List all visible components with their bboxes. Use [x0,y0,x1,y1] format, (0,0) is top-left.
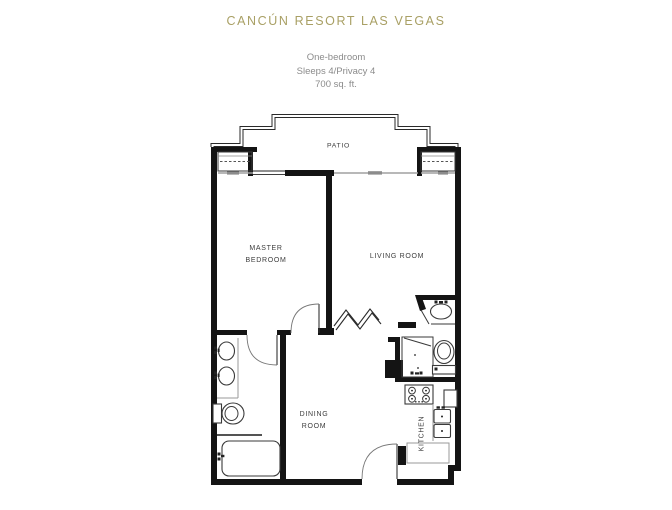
shower [402,337,433,377]
wall-left [211,147,217,485]
wall-top-right [418,147,461,152]
floor-plan-drawing: PATIO MASTER BEDROOM LIVING ROOM DINING … [0,0,672,510]
shower-faucet [411,372,423,375]
wall-door-stub [277,330,291,335]
wall-alcove-top [418,295,455,300]
master-vanity [214,338,238,398]
kitchen-sink [434,406,451,437]
master-toilet [213,403,244,424]
wall-bath1-dining [280,335,286,479]
vanity-sink-2 [219,367,235,385]
vanity-sink-1 [219,342,235,360]
wall-bath2-left [395,337,400,360]
master-bedroom-label-2: BEDROOM [245,257,286,264]
wall-bottom-right [397,479,454,485]
living-vanity [421,301,455,325]
dining-room-label-1: DINING [300,411,329,418]
master-bath-door [247,335,277,365]
patio-label: PATIO [327,143,350,150]
kitchen-label: KITCHEN [419,416,426,452]
living-room-label: LIVING ROOM [370,253,424,260]
wall-bath2-kitchen [395,377,455,382]
wall-peninsula-stub [398,446,406,465]
wall-right [455,147,461,467]
wall-bottom-left [211,479,362,485]
patio-storage-left [218,152,252,171]
wall-hall [398,322,416,328]
alcove-faucet [435,301,448,304]
kitchen-cabinet [444,390,457,407]
master-bedroom-door [291,304,319,333]
patio-storage-right [421,152,455,171]
wall-center [326,170,332,330]
dining-room-label-2: ROOM [302,423,327,430]
floor-plan-page: CANCÚN RESORT LAS VEGAS One-bedroom Slee… [0,0,672,510]
wall-center-cap [318,328,334,335]
alcove-sink [431,304,452,319]
second-toilet [433,341,456,375]
plumbing-block [385,360,403,378]
stove [405,385,433,404]
bathtub [218,441,281,476]
master-bedroom-label-1: MASTER [249,245,282,252]
break-line [334,309,381,330]
entry-door [362,444,397,479]
wall-master-bottom [217,330,247,335]
